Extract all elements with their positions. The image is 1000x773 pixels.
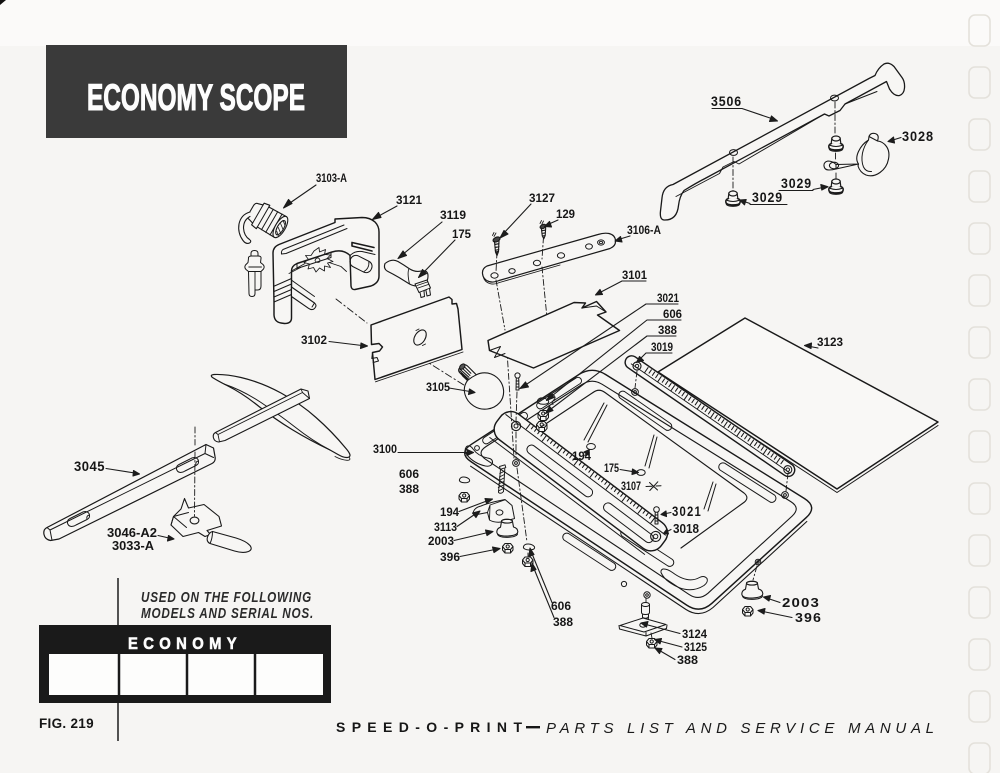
svg-text:129: 129 — [556, 207, 575, 221]
svg-text:388: 388 — [677, 653, 698, 667]
svg-text:3101: 3101 — [622, 268, 647, 282]
svg-text:3124: 3124 — [682, 627, 707, 641]
svg-text:3029: 3029 — [752, 189, 783, 205]
svg-text:2003: 2003 — [428, 534, 454, 548]
svg-text:ECONOMY SCOPE: ECONOMY SCOPE — [87, 77, 305, 118]
svg-text:3105: 3105 — [426, 380, 450, 394]
svg-text:194: 194 — [572, 449, 591, 463]
svg-text:3103-A: 3103-A — [316, 171, 347, 185]
svg-text:3121: 3121 — [396, 193, 422, 207]
svg-text:3021: 3021 — [657, 291, 679, 305]
svg-text:606: 606 — [551, 599, 571, 613]
svg-text:3113: 3113 — [434, 520, 457, 534]
svg-text:3127: 3127 — [529, 191, 555, 205]
svg-text:3021: 3021 — [672, 503, 702, 519]
svg-text:3119: 3119 — [440, 208, 466, 222]
svg-text:2003: 2003 — [782, 595, 820, 610]
svg-text:3028: 3028 — [902, 128, 934, 144]
svg-text:388: 388 — [553, 615, 573, 629]
svg-text:3106-A: 3106-A — [627, 223, 661, 237]
svg-text:388: 388 — [399, 482, 419, 496]
svg-text:S P E E D - O - P R I N T: S P E E D - O - P R I N T — [336, 719, 522, 735]
svg-text:175: 175 — [452, 227, 471, 241]
svg-text:3107: 3107 — [621, 479, 641, 493]
svg-text:606: 606 — [399, 467, 419, 481]
svg-text:3102: 3102 — [301, 333, 327, 347]
svg-text:3100: 3100 — [373, 442, 397, 456]
svg-text:3033-A: 3033-A — [112, 538, 155, 553]
svg-text:FIG. 219: FIG. 219 — [39, 716, 94, 731]
svg-text:606: 606 — [663, 307, 682, 321]
svg-text:3125: 3125 — [684, 640, 707, 654]
svg-text:194: 194 — [440, 505, 459, 519]
svg-text:3045: 3045 — [74, 459, 105, 474]
svg-text:MODELS AND SERIAL NOS.: MODELS AND SERIAL NOS. — [141, 605, 314, 622]
svg-text:388: 388 — [658, 323, 677, 337]
svg-text:3506: 3506 — [711, 93, 742, 109]
svg-text:175: 175 — [604, 461, 619, 475]
svg-text:3029: 3029 — [781, 175, 812, 191]
svg-text:396: 396 — [795, 610, 822, 625]
svg-text:USED ON THE FOLLOWING: USED ON THE FOLLOWING — [141, 589, 312, 606]
svg-text:3123: 3123 — [817, 335, 843, 349]
svg-text:3018: 3018 — [673, 521, 699, 536]
svg-text:396: 396 — [440, 550, 460, 564]
svg-text:3019: 3019 — [651, 340, 673, 354]
svg-text:ECONOMY: ECONOMY — [128, 635, 242, 653]
